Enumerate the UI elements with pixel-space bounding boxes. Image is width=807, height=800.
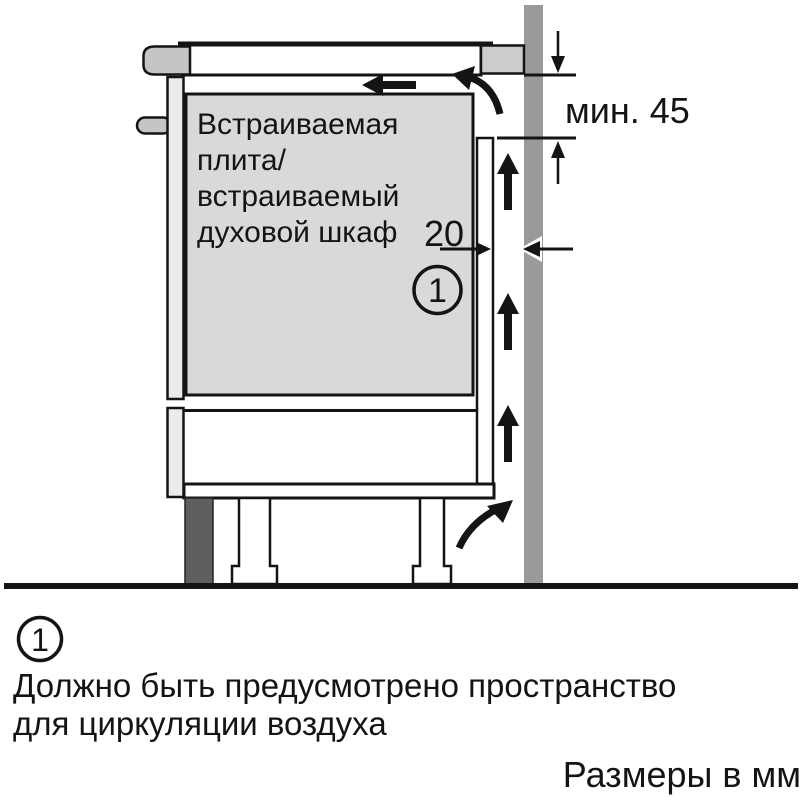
airflow-up-arrow-1 — [497, 153, 519, 210]
legs — [185, 498, 451, 584]
callout-1-number: 1 — [428, 272, 447, 310]
airflow-curve-bottom — [459, 509, 497, 548]
appliance-label-line-1: Встраиваемая — [197, 108, 398, 141]
footnote-marker-number: 1 — [31, 622, 49, 658]
units-note: Размеры в мм — [563, 754, 801, 795]
drawer-front-panel — [168, 408, 184, 497]
worktop-end-section — [481, 46, 524, 74]
oven-door-handle — [137, 118, 171, 134]
wall — [524, 5, 543, 583]
footnote: 1 Должно быть предусмотрено пространство… — [13, 618, 676, 743]
dim-arrow-up-head — [551, 141, 565, 158]
footnote-line-2: для циркуляции воздуха — [13, 705, 387, 742]
min-45-label: мин. 45 — [565, 90, 690, 131]
dim-arrow-down-head — [551, 56, 565, 73]
hob-front-edge — [144, 47, 191, 75]
appliance-label-line-2: плита/ — [197, 144, 287, 177]
plinth — [185, 498, 213, 584]
airflow-up-arrow-3 — [497, 405, 519, 462]
adjustable-foot-right — [413, 498, 451, 584]
worktop — [183, 45, 481, 75]
appliance-label-line-3: встраиваемый — [197, 180, 399, 213]
cabinet-front — [137, 77, 184, 497]
installation-diagram-page: Встраиваемая плита/ встраиваемый духовой… — [0, 0, 807, 800]
rear-vent-rail — [477, 138, 493, 484]
oven-door-panel — [168, 77, 184, 399]
footnote-line-1: Должно быть предусмотрено пространство — [13, 667, 676, 704]
airflow-up-arrow-2 — [497, 293, 519, 350]
installation-diagram: Встраиваемая плита/ встраиваемый духовой… — [0, 0, 807, 800]
adjustable-foot-left — [232, 498, 277, 584]
cabinet-base-plate — [184, 484, 494, 498]
appliance-label-line-4: духовой шкаф — [197, 216, 397, 249]
